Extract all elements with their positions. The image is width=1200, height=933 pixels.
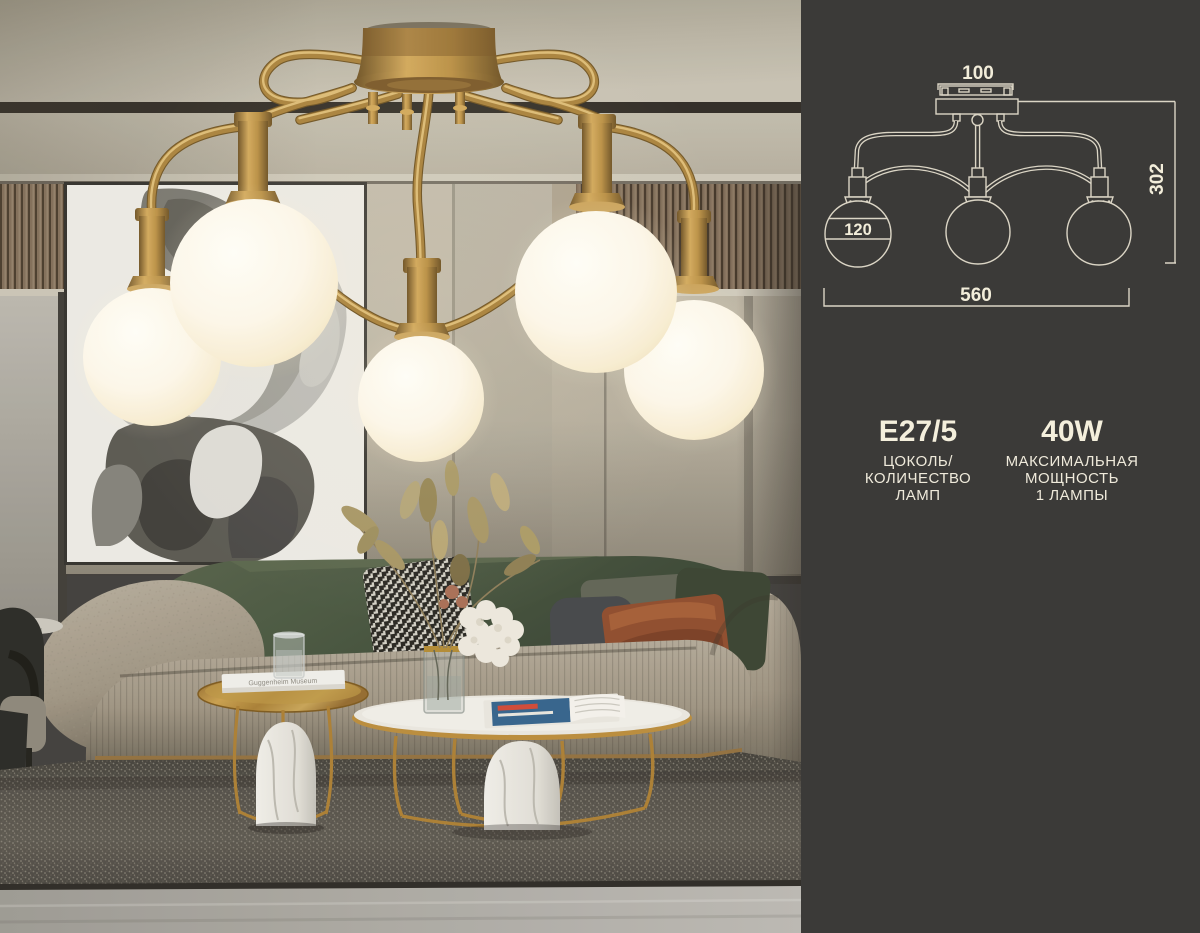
svg-text:КОЛИЧЕСТВО: КОЛИЧЕСТВО <box>865 470 971 487</box>
svg-text:100: 100 <box>962 63 994 84</box>
svg-text:120: 120 <box>844 221 872 239</box>
svg-text:МОЩНОСТЬ: МОЩНОСТЬ <box>1025 470 1119 487</box>
svg-text:E27/5: E27/5 <box>879 415 957 448</box>
svg-text:МАКСИМАЛЬНАЯ: МАКСИМАЛЬНАЯ <box>1006 453 1139 470</box>
svg-text:40W: 40W <box>1041 415 1103 448</box>
svg-text:ЦОКОЛЬ/: ЦОКОЛЬ/ <box>883 453 953 470</box>
svg-text:1 ЛАМПЫ: 1 ЛАМПЫ <box>1036 487 1108 504</box>
svg-text:560: 560 <box>960 285 992 306</box>
svg-text:302: 302 <box>1147 163 1168 195</box>
svg-text:ЛАМП: ЛАМП <box>895 487 940 504</box>
